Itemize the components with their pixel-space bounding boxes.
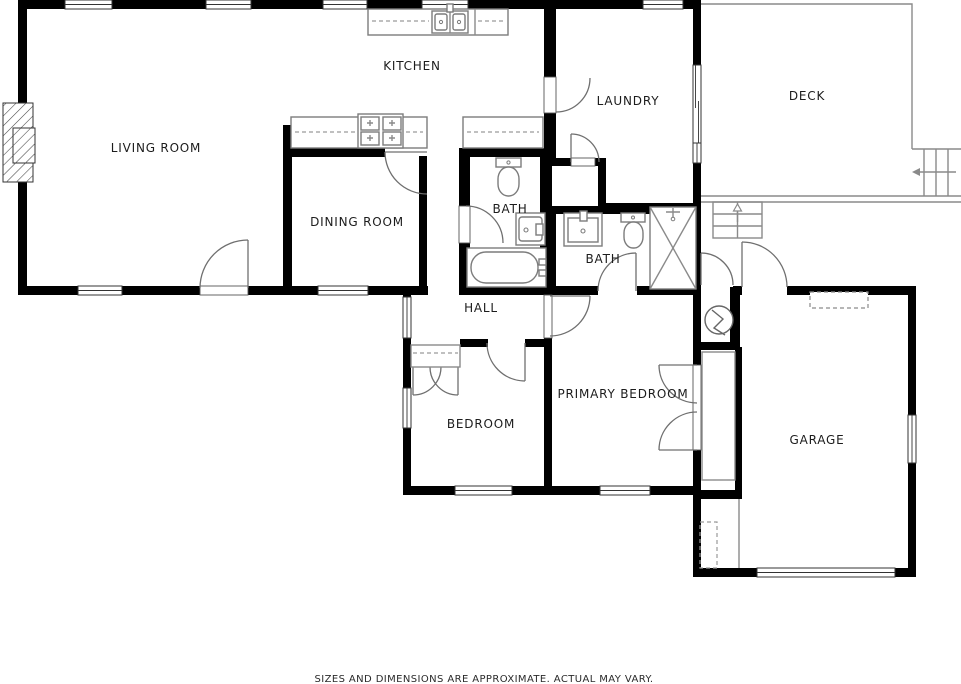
vanity-sink-icon [564,211,602,246]
front-door [200,240,248,288]
window [455,486,512,495]
room-label-dining-room: DINING ROOM [310,215,404,229]
shower-icon [650,207,696,289]
kitchen-counter-icon [368,4,508,35]
entry-steps-icon [713,202,762,238]
garage-door [757,568,895,577]
garage-storage [700,499,739,568]
window [643,0,683,9]
fireplace-icon [3,103,35,182]
bedroom-closet-doors [413,367,458,395]
water-heater-icon [705,306,733,335]
window [78,286,122,295]
window [403,388,411,428]
window [206,0,251,9]
window [323,0,367,9]
laundry-door [556,78,590,112]
room-label-bath-primary: BATH [585,252,620,266]
bedroom-door [487,343,525,381]
kitchen-south-counter-icon [291,114,427,148]
room-label-laundry: LAUNDRY [597,94,660,108]
deck-stairs-icon [912,149,956,196]
bedroom-closet [411,345,460,367]
window [403,297,411,338]
disclaimer-text: SIZES AND DIMENSIONS ARE APPROXIMATE. AC… [315,674,654,684]
primary-closet-interior [702,352,735,480]
stove-icon [358,114,403,148]
rear-entry-door [701,253,733,285]
hall-bath-fixtures [467,158,546,287]
primary-bedroom-door [550,296,590,336]
toilet-icon [621,213,645,248]
toilet-icon [496,158,521,196]
vanity-sink-icon [516,213,545,245]
room-label-primary-bedroom: PRIMARY BEDROOM [557,387,688,401]
primary-bath-fixtures [564,207,696,289]
window [422,0,468,9]
window [600,486,650,495]
window [65,0,112,9]
room-label-living-room: LIVING ROOM [111,141,201,155]
bathtub-icon [467,248,546,287]
room-label-deck: DECK [789,89,826,103]
room-label-hall: HALL [464,301,498,315]
kitchen-east-counter-icon [463,117,543,148]
primary-closet-doors [659,365,697,450]
attic-access [810,292,868,308]
window [908,415,916,463]
floor-plan-page: LIVING ROOM KITCHEN LAUNDRY DECK DINING … [0,0,961,684]
room-label-kitchen: KITCHEN [383,59,441,73]
room-label-garage: GARAGE [789,433,844,447]
room-label-bath-hall: BATH [492,202,527,216]
window [318,286,368,295]
floor-plan: LIVING ROOM KITCHEN LAUNDRY DECK DINING … [0,0,961,684]
garage-side-door [742,242,787,287]
sliding-door-icon [693,65,701,143]
room-label-bedroom: BEDROOM [447,417,515,431]
window [693,143,701,163]
